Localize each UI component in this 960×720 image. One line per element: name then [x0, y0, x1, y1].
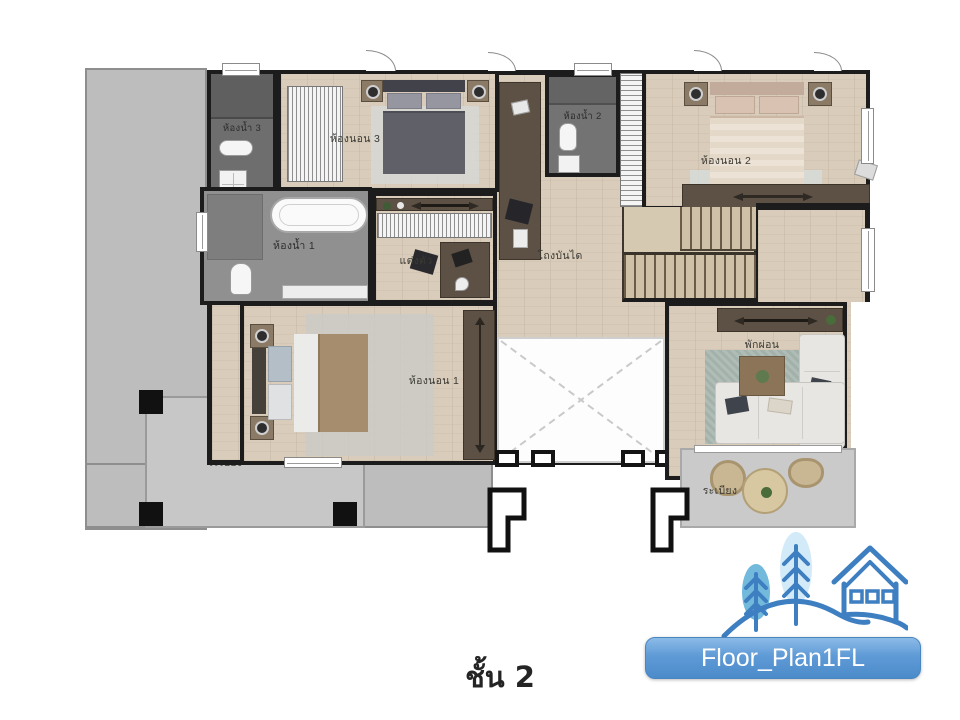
- toilet: [230, 263, 252, 295]
- nightstand: [361, 80, 383, 102]
- stair-hall-label: โถงบันได: [515, 247, 605, 264]
- floor-plan-slide: { "caption": "ชั้น 2", "button": { "labe…: [0, 0, 960, 720]
- vanity: [282, 285, 368, 299]
- closet-strip: [620, 73, 644, 207]
- sink: [558, 155, 580, 173]
- door-swing: [488, 52, 516, 71]
- dressing-label: แต่งตัว: [386, 252, 446, 269]
- nightstand: [467, 80, 489, 102]
- wall-section-symbols: [485, 486, 695, 558]
- wicker-chair: [788, 458, 824, 488]
- balcony-post: [139, 502, 163, 526]
- window: [196, 212, 208, 252]
- bed: [268, 334, 368, 432]
- toilet: [559, 123, 577, 151]
- console: [376, 198, 493, 211]
- balcony-right: ระเบียง: [680, 448, 856, 528]
- house-and-trees-logo: [718, 518, 908, 643]
- void-open-below: [497, 337, 665, 463]
- shower-area: [549, 77, 616, 105]
- door-swing: [814, 52, 842, 71]
- round-table: [742, 468, 788, 514]
- void-x-marks: [499, 339, 663, 461]
- balcony-right-label: ระเบียง: [694, 482, 746, 499]
- room-bedroom1: ห้องนอน 1: [240, 302, 497, 465]
- bathroom2-label: ห้องน้ำ 2: [549, 109, 616, 124]
- coffee-table: [739, 356, 785, 396]
- window: [861, 108, 874, 164]
- balcony-post: [333, 502, 357, 526]
- room-bathroom2: ห้องน้ำ 2: [545, 73, 620, 177]
- bathroom1-label: ห้องน้ำ 1: [254, 237, 334, 254]
- door-swing: [366, 50, 396, 71]
- nightstand: [684, 82, 708, 106]
- bed: [383, 80, 465, 174]
- window: [284, 457, 342, 468]
- floor-plan-1fl-button-label: Floor_Plan1FL: [701, 644, 865, 673]
- bedroom2-label: ห้องนอน 2: [676, 152, 776, 169]
- room-bedroom3: ห้องนอน 3: [277, 70, 499, 192]
- floor-caption: ชั้น 2: [400, 654, 600, 700]
- window: [222, 63, 260, 76]
- desk-strip: [499, 82, 541, 260]
- column-marker: [531, 450, 555, 467]
- column-marker: [621, 450, 645, 467]
- room-bathroom1: ห้องน้ำ 1: [200, 187, 372, 305]
- window: [574, 63, 612, 76]
- toilet: [219, 140, 253, 156]
- column-marker: [495, 450, 519, 467]
- window: [861, 228, 875, 292]
- bedroom3-label: ห้องนอน 3: [315, 130, 395, 147]
- room-dressing: แต่งตัว: [372, 192, 497, 304]
- shower-area: [211, 74, 273, 119]
- tv-console: [717, 308, 843, 332]
- closet-rail: [377, 213, 492, 238]
- door-swing: [694, 50, 722, 71]
- wall-segment: [756, 203, 870, 209]
- bathtub: [270, 197, 368, 233]
- balcony-post: [139, 390, 163, 414]
- bathroom3-label: ห้องน้ำ 3: [211, 121, 273, 136]
- headboard: [252, 348, 266, 414]
- stairs: [622, 207, 758, 302]
- dressing-desk: [440, 242, 490, 298]
- floor-plan-1fl-button[interactable]: Floor_Plan1FL: [645, 637, 921, 679]
- nightstand: [808, 82, 832, 106]
- stair-flight-lower: [624, 255, 756, 298]
- sliding-door: [694, 445, 842, 453]
- wardrobe: [463, 310, 495, 460]
- room-bedroom2: ห้องนอน 2: [642, 70, 870, 210]
- stair-flight-upper: [680, 207, 756, 251]
